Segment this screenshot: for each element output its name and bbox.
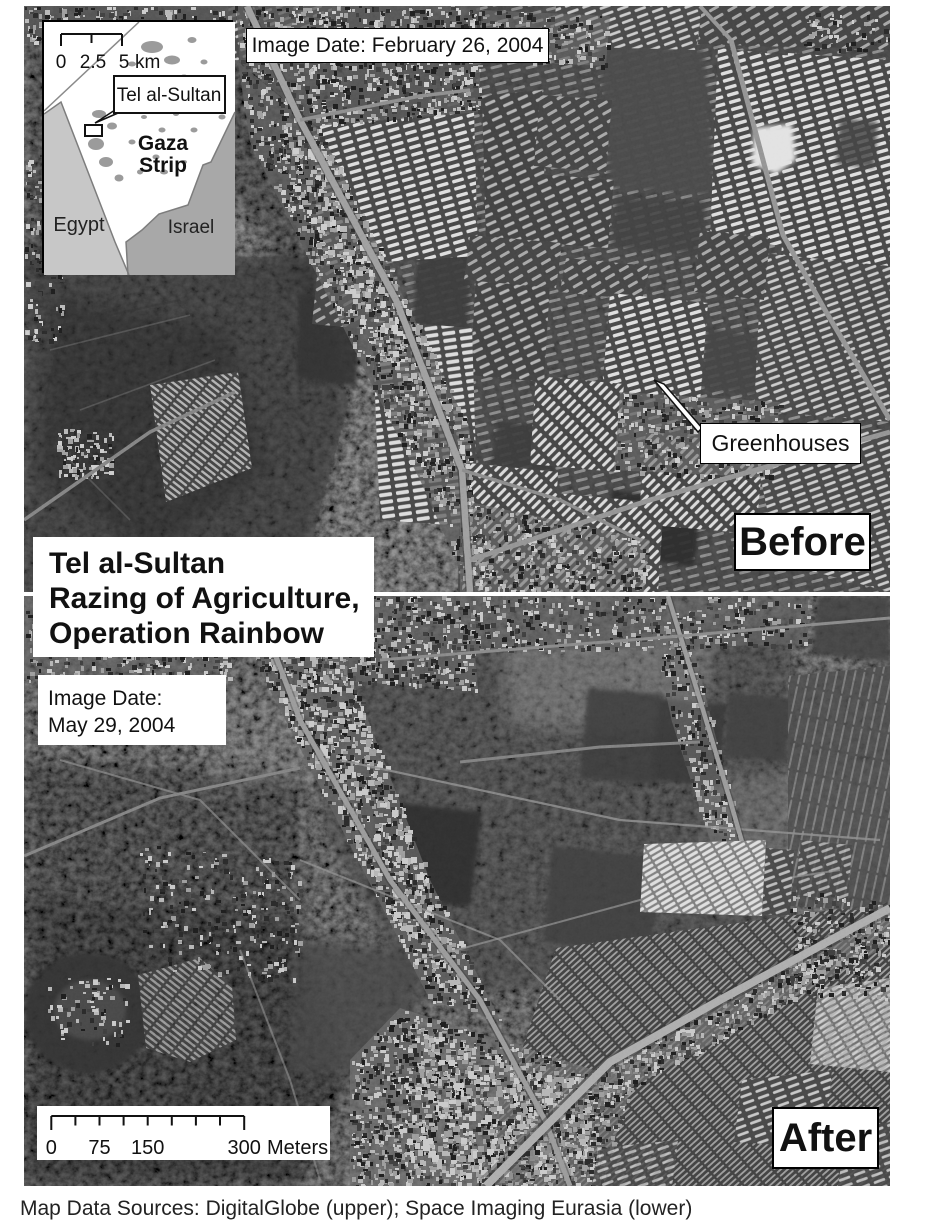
svg-text:km: km xyxy=(135,52,160,73)
svg-text:Egypt: Egypt xyxy=(53,214,105,236)
svg-text:0: 0 xyxy=(46,1137,57,1159)
svg-text:0: 0 xyxy=(56,52,67,73)
svg-text:Strip: Strip xyxy=(139,154,187,177)
svg-text:5: 5 xyxy=(119,52,130,73)
svg-text:300: 300 xyxy=(228,1137,261,1159)
svg-text:75: 75 xyxy=(88,1137,110,1159)
svg-text:Gaza: Gaza xyxy=(138,132,189,155)
svg-text:Israel: Israel xyxy=(168,217,214,238)
svg-text:Meters: Meters xyxy=(267,1137,328,1159)
svg-text:Tel al-Sultan: Tel al-Sultan xyxy=(117,85,222,106)
svg-text:2.5: 2.5 xyxy=(80,52,106,73)
svg-text:150: 150 xyxy=(131,1137,164,1159)
